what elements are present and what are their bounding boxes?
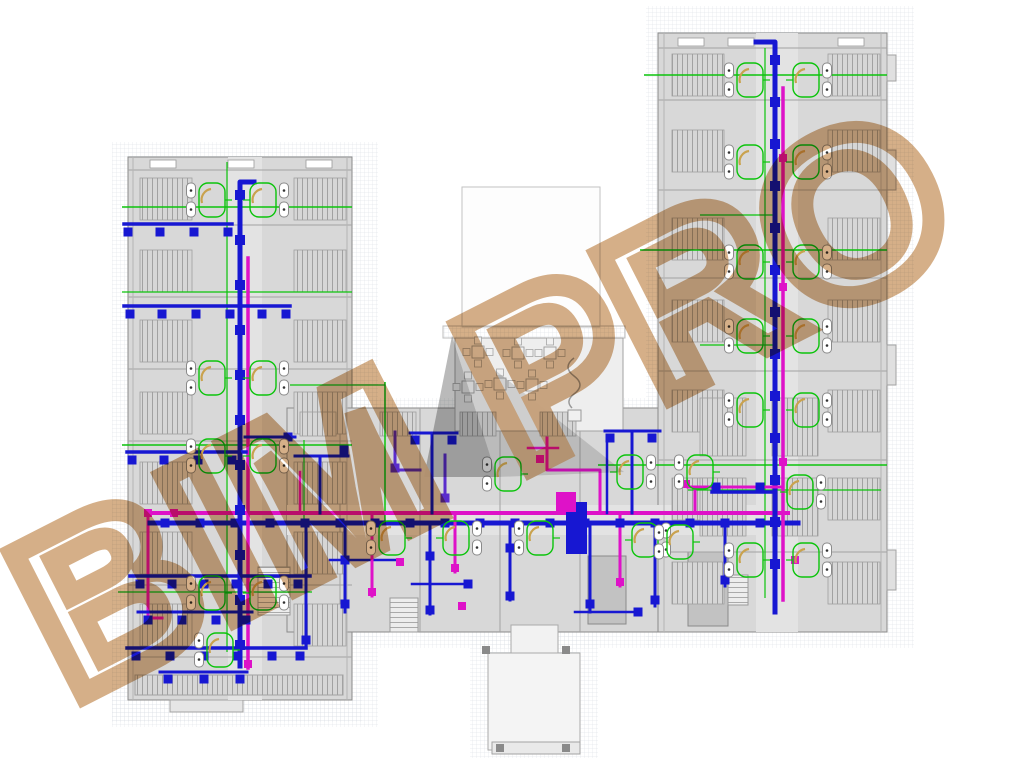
label-box	[306, 160, 332, 168]
pipe-fitting	[282, 310, 291, 319]
fixture-dot-icon	[190, 208, 193, 211]
corner-fitting	[482, 646, 490, 654]
fixture-dot-icon	[820, 500, 823, 503]
label-box	[228, 160, 254, 168]
south-wing	[488, 653, 580, 750]
pipe-fitting	[770, 517, 780, 527]
pipe-fitting	[581, 519, 590, 528]
fixture-dot-icon	[728, 549, 731, 552]
fixture-dot-icon	[826, 549, 829, 552]
pipe-fitting	[506, 592, 515, 601]
pipe-fitting	[770, 97, 780, 107]
pipe-fitting	[190, 228, 199, 237]
fixture-dot-icon	[728, 69, 731, 72]
fixture-dot-icon	[190, 367, 193, 370]
fixture-dot-icon	[190, 189, 193, 192]
pipe-fitting-magenta	[616, 578, 624, 586]
pipe-fitting	[224, 228, 233, 237]
left-wing-step	[170, 700, 243, 712]
label-box	[678, 38, 704, 46]
pipe-fitting	[616, 519, 625, 528]
fixture-dot-icon	[283, 189, 286, 192]
pipe-fitting	[770, 475, 780, 485]
pipe-fitting	[126, 310, 135, 319]
fixture-dot-icon	[650, 480, 653, 483]
pipe-fitting-magenta	[779, 458, 787, 466]
label-box	[150, 160, 176, 168]
east-tab	[887, 55, 896, 81]
pipe-fitting	[770, 55, 780, 65]
pipe-fitting	[235, 235, 245, 245]
pipe-fitting	[192, 310, 201, 319]
corner-fitting	[496, 744, 504, 752]
pipe-fitting	[651, 596, 660, 605]
pipe-fitting	[464, 580, 473, 589]
stair	[390, 598, 418, 632]
pipe-fitting	[235, 280, 245, 290]
fixture-dot-icon	[728, 568, 731, 571]
bed-hatch	[294, 250, 346, 292]
east-tab	[887, 550, 896, 590]
corner-fitting	[562, 646, 570, 654]
pipe-fitting	[721, 519, 730, 528]
fixture-dot-icon	[190, 386, 193, 389]
bed-hatch	[828, 478, 880, 520]
fixture-dot-icon	[678, 461, 681, 464]
label-box	[728, 38, 754, 46]
fixture-dot-icon	[826, 69, 829, 72]
pipe-fitting	[258, 310, 267, 319]
label-box	[838, 38, 864, 46]
fixture-dot-icon	[518, 546, 521, 549]
pipe-fitting	[235, 190, 245, 200]
bed-hatch	[828, 390, 880, 432]
pipe-fitting	[226, 310, 235, 319]
pipe-fitting	[235, 325, 245, 335]
pipe-fitting	[634, 608, 643, 617]
east-tab	[887, 345, 896, 385]
pipe-fitting	[236, 675, 245, 684]
bed-hatch	[140, 178, 192, 220]
pipe-fitting-magenta	[451, 564, 459, 572]
fixture-dot-icon	[826, 418, 829, 421]
pipe-fitting	[586, 600, 595, 609]
fixture-dot-icon	[650, 461, 653, 464]
fixture-dot-icon	[658, 531, 661, 534]
pipe-fitting	[158, 310, 167, 319]
south-step	[511, 625, 558, 653]
corner-fitting	[562, 744, 570, 752]
cad-drawing-canvas: BIM PRO	[0, 0, 1024, 768]
fixture-dot-icon	[728, 88, 731, 91]
bed-hatch	[140, 320, 192, 362]
pipe-fitting	[296, 652, 305, 661]
bed-hatch	[828, 562, 880, 604]
fixture-dot-icon	[820, 481, 823, 484]
bed-hatch	[294, 178, 346, 220]
pipe-fitting	[506, 544, 515, 553]
fixture-dot-icon	[826, 568, 829, 571]
pipe-fitting	[426, 606, 435, 615]
pipe-fitting	[770, 433, 780, 443]
pipe-fitting	[156, 228, 165, 237]
floor-plan: BIM PRO	[0, 0, 1024, 768]
fixture-dot-icon	[678, 480, 681, 483]
pipe-fitting	[124, 228, 133, 237]
bed-hatch	[672, 562, 724, 604]
stair	[728, 575, 748, 605]
fixture-dot-icon	[283, 208, 286, 211]
pipe-fitting	[756, 519, 765, 528]
fixture-dot-icon	[658, 550, 661, 553]
bed-hatch	[140, 250, 192, 292]
pipe-fitting	[756, 483, 765, 492]
fixture-dot-icon	[826, 399, 829, 402]
pipe-fitting	[770, 559, 780, 569]
pipe-fitting-magenta	[458, 602, 466, 610]
